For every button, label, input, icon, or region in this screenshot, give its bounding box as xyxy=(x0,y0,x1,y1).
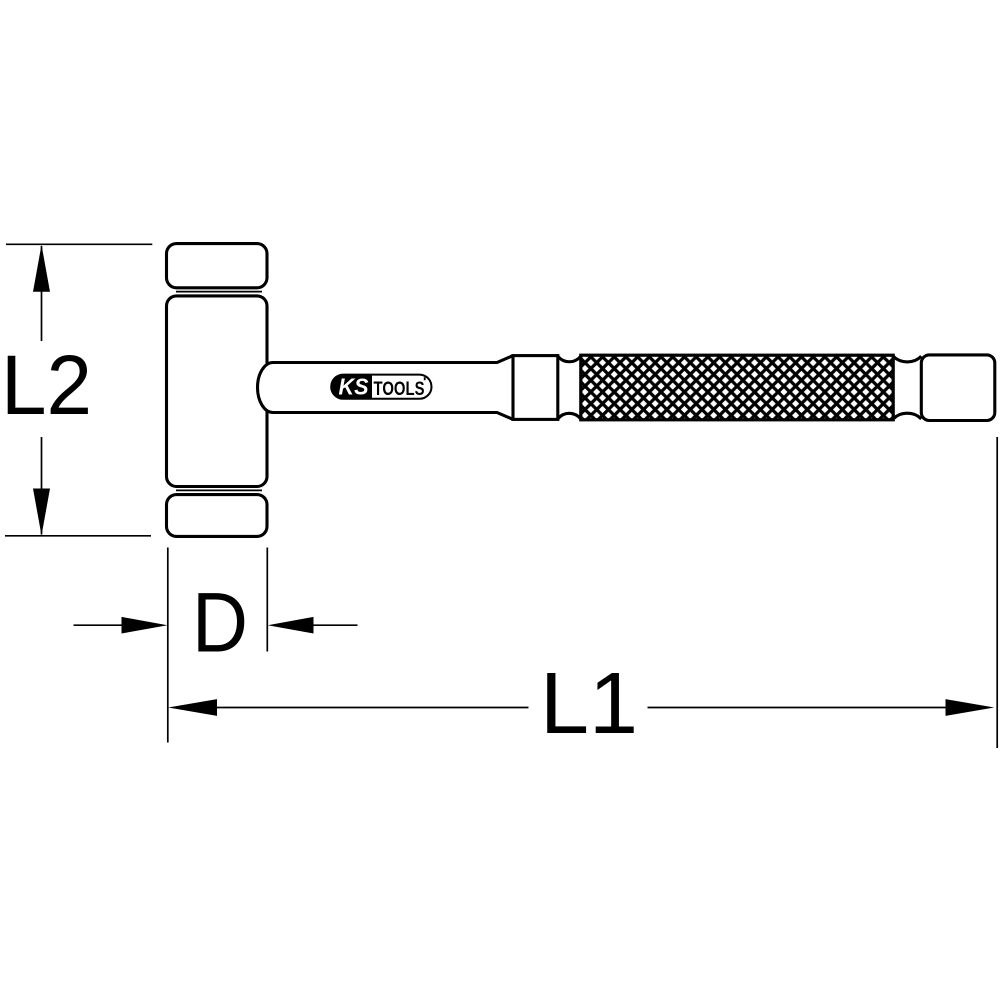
svg-text:D: D xyxy=(192,576,248,670)
svg-text:L2: L2 xyxy=(1,338,92,432)
svg-text:TOOLS: TOOLS xyxy=(374,378,425,400)
svg-text:KS: KS xyxy=(339,374,370,400)
svg-text:L1: L1 xyxy=(540,655,638,752)
